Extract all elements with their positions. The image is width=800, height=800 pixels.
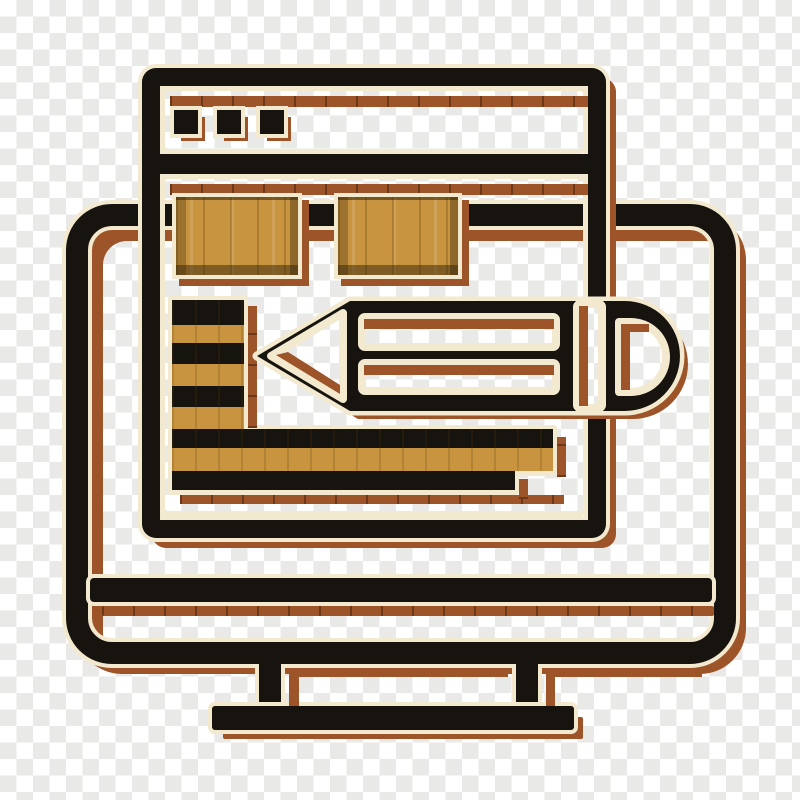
stand-base <box>212 706 574 730</box>
monitor-chin-shadow <box>102 606 714 616</box>
titlebar-accent <box>170 96 588 107</box>
titlebar-separator <box>156 154 592 174</box>
icon-canvas <box>0 0 800 800</box>
content-image-block-2 <box>334 193 462 279</box>
pencil-ferrule-shadow <box>579 306 588 406</box>
stripes-shadow-rows <box>557 437 566 477</box>
window-button-3 <box>260 110 284 134</box>
list-wide-bar-3 <box>172 471 515 490</box>
window-button-2 <box>217 110 241 134</box>
stand-right-shadow <box>546 668 702 706</box>
pencil-eraser-shadow-top <box>621 324 649 332</box>
monitor-chin-bar <box>90 578 712 602</box>
stand-leg-left <box>255 664 285 710</box>
stand-leg-right <box>512 664 542 710</box>
window-button-1 <box>174 110 198 134</box>
pencil-slot-lower-shadow <box>364 365 554 375</box>
stripes-shadow-bottom <box>180 495 564 504</box>
stripes-shadow-row3 <box>519 479 528 499</box>
list-stripes-column <box>172 300 244 430</box>
pencil <box>240 280 700 440</box>
pencil-eraser-shadow-left <box>621 324 630 390</box>
stand-opening-shadow <box>289 668 508 706</box>
pencil-slot-upper-shadow <box>364 319 554 329</box>
content-image-block-1 <box>172 193 302 279</box>
